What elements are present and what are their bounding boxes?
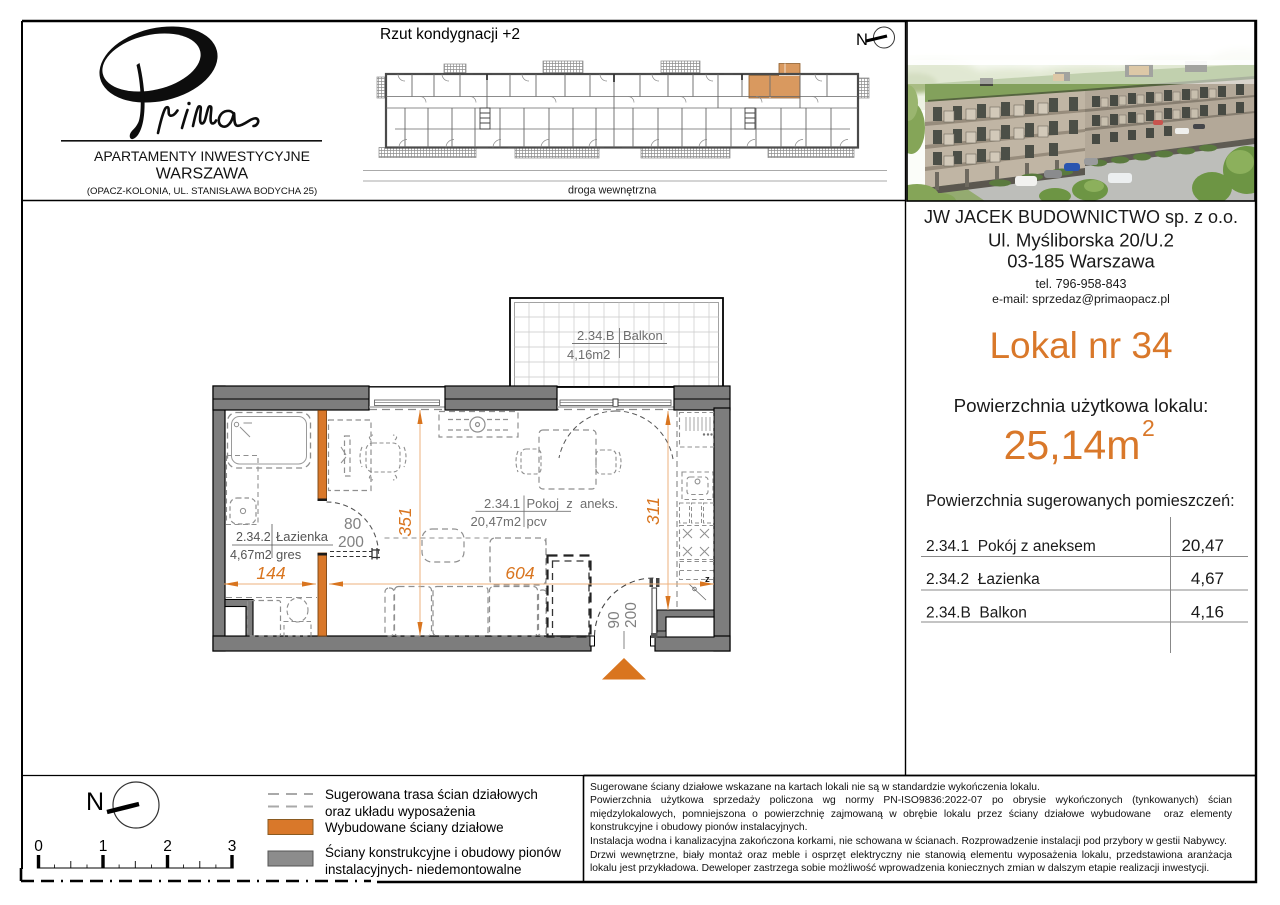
svg-text:4,16: 4,16 (1191, 603, 1224, 622)
svg-text:droga wewnętrzna: droga wewnętrzna (568, 185, 656, 197)
svg-text:2: 2 (163, 838, 172, 855)
svg-text:2.34.B: 2.34.B (577, 328, 615, 343)
svg-text:APARTAMENTY INWESTYCYJNE: APARTAMENTY INWESTYCYJNE (94, 148, 310, 164)
svg-text:Ul. Myśliborska 20/U.2: Ul. Myśliborska 20/U.2 (988, 230, 1174, 251)
svg-text:e-mail: sprzedaz@primaopacz.pl: e-mail: sprzedaz@primaopacz.pl (992, 292, 1170, 306)
svg-text:144: 144 (256, 563, 285, 583)
svg-text:Balkon: Balkon (623, 328, 663, 343)
svg-text:Łazienka: Łazienka (276, 529, 329, 544)
svg-text:2: 2 (1142, 415, 1155, 441)
svg-text:4,67m2: 4,67m2 (230, 548, 272, 562)
svg-text:200: 200 (338, 534, 364, 551)
svg-text:4,67: 4,67 (1191, 569, 1224, 588)
svg-text:25,14m: 25,14m (1004, 422, 1141, 468)
svg-text:2.34.1 Pokój z aneksem: 2.34.1 Pokój z aneksem (926, 538, 1096, 555)
svg-text:N: N (86, 788, 104, 816)
svg-text:2.34.B Balkon: 2.34.B Balkon (926, 605, 1027, 622)
svg-text:Pokoj z aneks.: Pokoj z aneks. (527, 496, 619, 511)
svg-text:Powierzchnia użytkowa lokalu:: Powierzchnia użytkowa lokalu: (954, 395, 1209, 416)
svg-text:20,47m2: 20,47m2 (471, 514, 522, 529)
svg-text:4,16m2: 4,16m2 (567, 347, 610, 362)
svg-text:(OPACZ-KOLONIA, UL. STANISŁAWA: (OPACZ-KOLONIA, UL. STANISŁAWA BODYCHA 2… (87, 186, 317, 197)
svg-text:Powierzchnia sugerowanych pomi: Powierzchnia sugerowanych pomieszczeń: (926, 492, 1235, 510)
svg-text:Wybudowane ściany działowe: Wybudowane ściany działowe (325, 820, 504, 835)
svg-text:200: 200 (623, 602, 640, 628)
svg-text:1: 1 (99, 838, 108, 855)
svg-text:311: 311 (643, 497, 663, 525)
svg-text:Rzut kondygnacji +2: Rzut kondygnacji +2 (380, 26, 520, 43)
svg-text:Lokal nr 34: Lokal nr 34 (989, 325, 1172, 366)
svg-text:351: 351 (395, 507, 415, 536)
svg-text:Ściany konstrukcyjne i obudowy: Ściany konstrukcyjne i obudowy pionów (325, 845, 561, 860)
svg-text:instalacyjnych- niedemontowaln: instalacyjnych- niedemontowalne (325, 862, 522, 877)
svg-text:JW JACEK BUDOWNICTWO sp. z o.o: JW JACEK BUDOWNICTWO sp. z o.o. (924, 207, 1238, 227)
svg-text:80: 80 (344, 516, 362, 533)
svg-text:Sugerowana trasa ścian działow: Sugerowana trasa ścian działowych (325, 787, 538, 802)
svg-text:3: 3 (228, 838, 237, 855)
svg-text:oraz układu wyposażenia: oraz układu wyposażenia (325, 804, 476, 819)
svg-text:0: 0 (34, 838, 43, 855)
svg-text:90: 90 (606, 611, 623, 629)
svg-text:604: 604 (505, 563, 534, 583)
svg-text:03-185 Warszawa: 03-185 Warszawa (1007, 251, 1155, 272)
svg-text:2.34.2: 2.34.2 (236, 530, 271, 544)
svg-text:WARSZAWA: WARSZAWA (156, 166, 249, 183)
svg-text:2.34.2 Łazienka: 2.34.2 Łazienka (926, 571, 1040, 588)
svg-text:gres: gres (276, 547, 302, 562)
svg-text:2.34.1: 2.34.1 (484, 496, 520, 511)
svg-text:pcv: pcv (527, 514, 548, 529)
svg-text:20,47: 20,47 (1181, 536, 1224, 555)
svg-text:tel. 796-958-843: tel. 796-958-843 (1035, 277, 1126, 291)
